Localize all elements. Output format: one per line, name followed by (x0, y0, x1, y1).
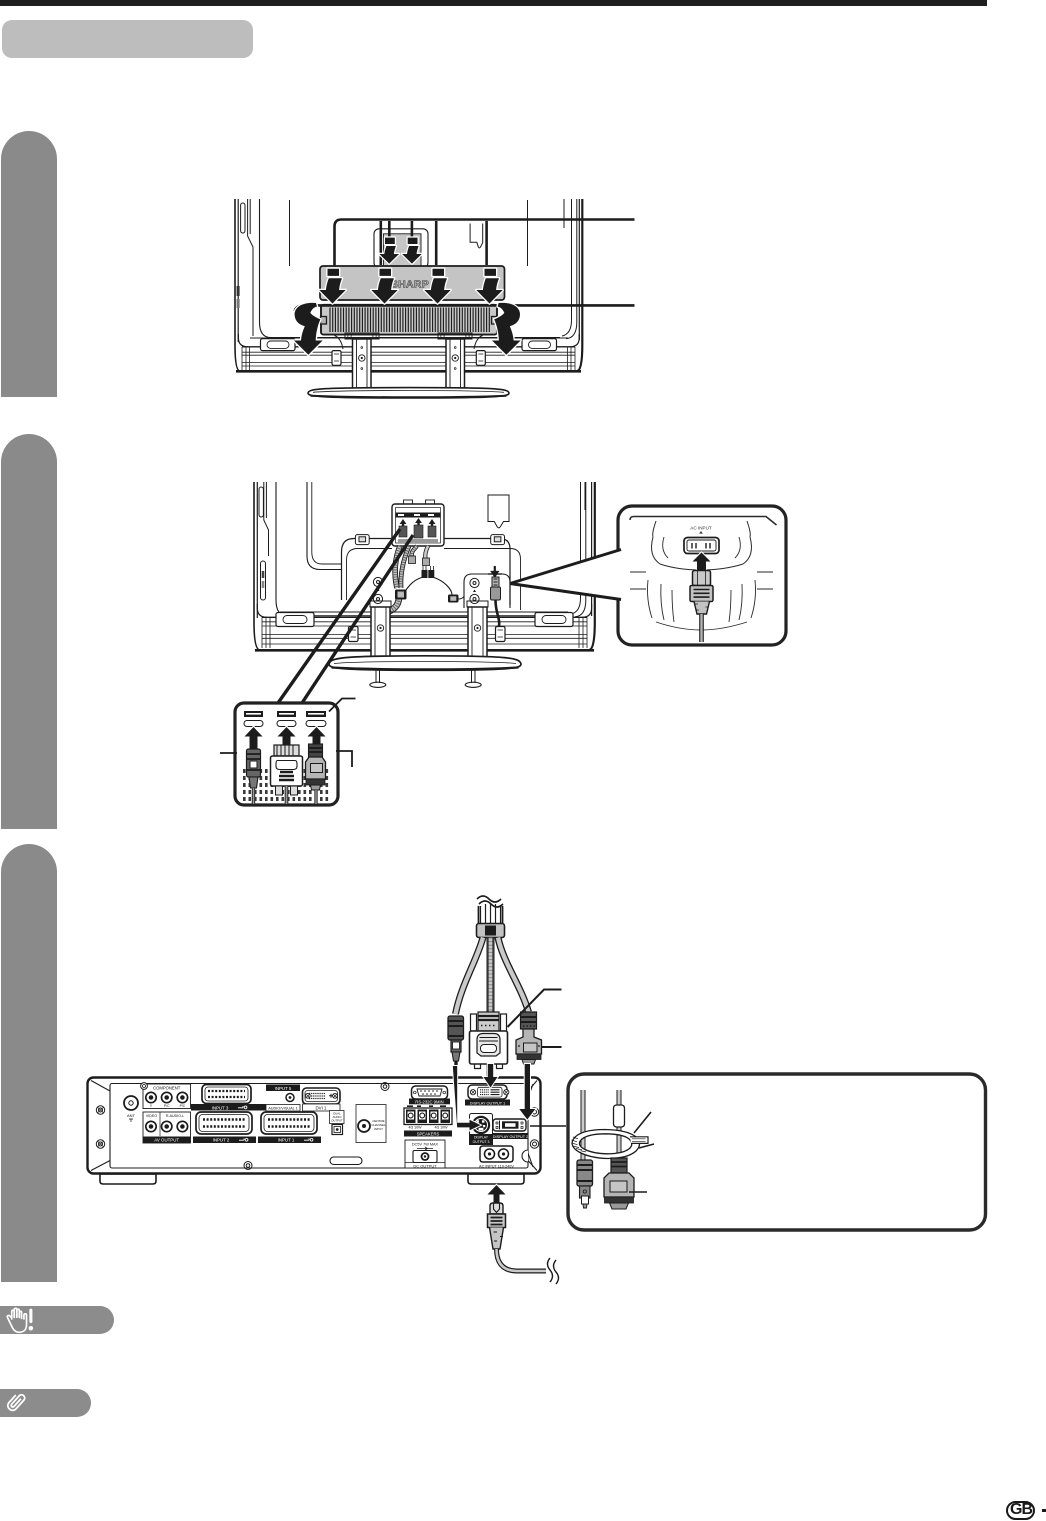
svg-text:DISPLAY: DISPLAY (474, 1136, 489, 1140)
svg-text:VIDEO: VIDEO (146, 1114, 157, 1118)
svg-text:AV OUTPUT: AV OUTPUT (154, 1138, 179, 1143)
svg-text:ANT: ANT (127, 1113, 136, 1118)
svg-text:INPUT 3: INPUT 3 (212, 1105, 229, 1110)
svg-text:AUDIO/VISUAL 1: AUDIO/VISUAL 1 (268, 1107, 298, 1111)
svg-text:AC INPUT: AC INPUT (690, 526, 712, 531)
svg-text:P/C: P/C (180, 1104, 186, 1108)
svg-text:DVI 1: DVI 1 (316, 1106, 328, 1111)
svg-text:SPEAKERS: SPEAKERS (417, 1132, 440, 1137)
svg-text:P/C: P/C (164, 1104, 170, 1108)
svg-text:RS-232C 9MIN: RS-232C 9MIN (415, 1099, 443, 1104)
svg-text:COMPONENT: COMPONENT (153, 1086, 181, 1091)
svg-text:R-AUDIO-L: R-AUDIO-L (166, 1114, 184, 1118)
svg-text:DISPLAY OUTPUT 2: DISPLAY OUTPUT 2 (493, 1135, 528, 1139)
svg-text:INPUT 2: INPUT 2 (213, 1138, 230, 1143)
svg-text:OUTPUT: OUTPUT (331, 1118, 343, 1122)
svg-text:INPUT 5: INPUT 5 (275, 1086, 292, 1091)
svg-text:DISPLAY OUTPUT 1: DISPLAY OUTPUT 1 (470, 1101, 505, 1105)
svg-text:INPUT: INPUT (374, 1127, 383, 1131)
svg-text:4Ω 10W: 4Ω 10W (434, 1126, 448, 1130)
svg-text:4Ω 10W: 4Ω 10W (408, 1126, 422, 1130)
svg-text:DC5V 7W MAX: DC5V 7W MAX (412, 1143, 439, 1147)
svg-text:DC OUTPUT: DC OUTPUT (413, 1163, 437, 1168)
svg-text:OUTPUT 3: OUTPUT 3 (473, 1140, 490, 1144)
svg-text:INPUT 1: INPUT 1 (278, 1138, 295, 1143)
svg-text:AC INPUT 110-240V: AC INPUT 110-240V (479, 1165, 514, 1169)
